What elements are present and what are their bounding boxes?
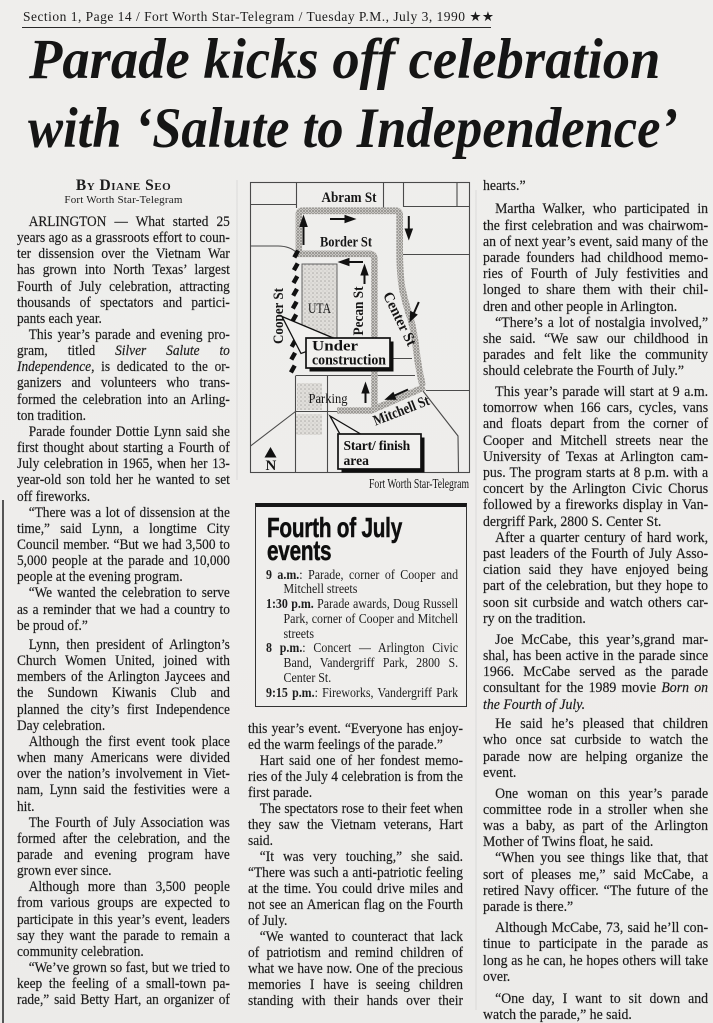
svg-text:Border St: Border St xyxy=(320,235,372,251)
svg-text:Pecan St: Pecan St xyxy=(351,287,367,336)
svg-text:Parking: Parking xyxy=(309,392,348,407)
svg-text:Start/ finish: Start/ finish xyxy=(344,438,411,453)
svg-text:Abram St: Abram St xyxy=(322,190,377,206)
svg-text:Fort Worth Star-Telegram: Fort Worth Star-Telegram xyxy=(369,476,470,491)
svg-text:Cooper St: Cooper St xyxy=(271,288,287,344)
svg-text:area: area xyxy=(344,453,370,468)
svg-text:UTA: UTA xyxy=(308,301,331,317)
svg-text:construction: construction xyxy=(312,352,386,368)
svg-text:N: N xyxy=(266,458,277,474)
